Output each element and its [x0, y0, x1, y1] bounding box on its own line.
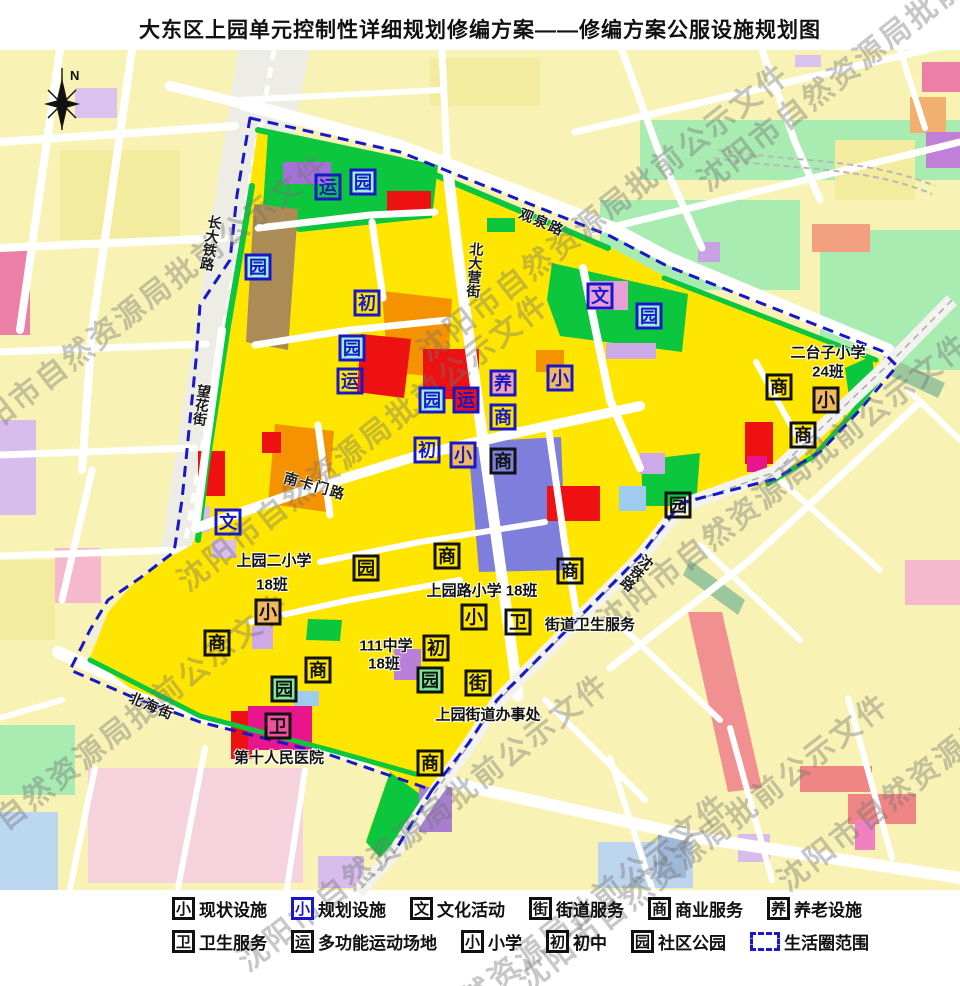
- facility-marker: 商: [204, 630, 231, 657]
- legend-item: 养养老设施: [767, 896, 862, 921]
- facility-marker: 小: [461, 604, 488, 631]
- legend-item: 商商业服务: [648, 896, 743, 921]
- facility-marker: 商: [490, 404, 517, 431]
- facility-marker: 初: [423, 635, 450, 662]
- legend-glyph-swatch: 文: [410, 897, 433, 920]
- legend-row: 小现状设施小规划设施文文化活动街街道服务商商业服务养养老设施: [0, 892, 960, 925]
- legend-glyph-swatch: 商: [648, 897, 671, 920]
- facility-marker: 运: [337, 368, 364, 395]
- legend-glyph-swatch: 初: [546, 930, 569, 953]
- legend-item: 小小学: [461, 929, 522, 954]
- legend-glyph-swatch: 运: [291, 930, 314, 953]
- facility-marker: 园: [353, 555, 380, 582]
- legend: 小现状设施小规划设施文文化活动街街道服务商商业服务养养老设施卫卫生服务运多功能运…: [0, 892, 960, 958]
- facility-marker: 园: [245, 254, 272, 281]
- facility-marker: 初: [354, 290, 381, 317]
- facility-marker: 园: [339, 335, 366, 362]
- legend-glyph-swatch: 养: [767, 897, 790, 920]
- facility-marker: 卫: [505, 609, 532, 636]
- legend-boundary-swatch: [750, 932, 780, 951]
- legend-item: 小现状设施: [172, 896, 267, 921]
- legend-glyph-swatch: 小: [172, 897, 195, 920]
- legend-item: 园社区公园: [631, 929, 726, 954]
- facility-marker: 商: [490, 448, 517, 475]
- legend-label: 规划设施: [318, 896, 386, 921]
- legend-glyph-swatch: 卫: [172, 930, 195, 953]
- facility-marker: 园: [665, 492, 692, 519]
- legend-item: 运多功能运动场地: [291, 929, 437, 954]
- facility-marker: 商: [790, 422, 817, 449]
- legend-label: 生活圈范围: [784, 929, 869, 954]
- legend-glyph-swatch: 街: [529, 897, 552, 920]
- legend-label: 多功能运动场地: [318, 929, 437, 954]
- facility-marker: 园: [636, 303, 663, 330]
- facility-marker: 卫: [265, 713, 292, 740]
- facility-marker: 初: [414, 437, 441, 464]
- facility-marker: 小: [255, 599, 282, 626]
- facility-marker: 商: [766, 374, 793, 401]
- facility-marker: 商: [417, 750, 444, 777]
- facility-marker: 养: [490, 370, 517, 397]
- facility-marker: 小: [450, 442, 477, 469]
- legend-label: 文化活动: [437, 896, 505, 921]
- legend-label: 养老设施: [794, 896, 862, 921]
- facility-marker: 小: [547, 365, 574, 392]
- facility-marker: 文: [587, 283, 614, 310]
- facility-marker-layer: 运园园初园运文园养商小园运初小商文商商园小小卫商初商园街园卫商园商小商: [0, 0, 960, 986]
- legend-item: 卫卫生服务: [172, 929, 267, 954]
- legend-item: 街街道服务: [529, 896, 624, 921]
- legend-item: 小规划设施: [291, 896, 386, 921]
- facility-marker: 文: [215, 509, 242, 536]
- facility-marker: 园: [350, 169, 377, 196]
- legend-label: 商业服务: [675, 896, 743, 921]
- legend-label: 街道服务: [556, 896, 624, 921]
- facility-marker: 园: [419, 387, 446, 414]
- legend-glyph-swatch: 小: [291, 897, 314, 920]
- legend-item: 文文化活动: [410, 896, 505, 921]
- legend-item: 生活圈范围: [750, 929, 869, 954]
- facility-marker: 街: [465, 670, 492, 697]
- facility-marker: 运: [453, 387, 480, 414]
- facility-marker: 商: [305, 657, 332, 684]
- facility-marker: 运: [315, 174, 342, 201]
- page-title: 大东区上园单元控制性详细规划修编方案——修编方案公服设施规划图: [0, 14, 960, 44]
- legend-label: 现状设施: [199, 896, 267, 921]
- legend-label: 小学: [488, 929, 522, 954]
- legend-glyph-swatch: 小: [461, 930, 484, 953]
- legend-row: 卫卫生服务运多功能运动场地小小学初初中园社区公园生活圈范围: [0, 925, 960, 958]
- facility-marker: 园: [417, 667, 444, 694]
- legend-item: 初初中: [546, 929, 607, 954]
- legend-label: 卫生服务: [199, 929, 267, 954]
- legend-glyph-swatch: 园: [631, 930, 654, 953]
- facility-marker: 小: [813, 387, 840, 414]
- legend-label: 社区公园: [658, 929, 726, 954]
- legend-label: 初中: [573, 929, 607, 954]
- planning-map-page: 大东区上园单元控制性详细规划修编方案——修编方案公服设施规划图: [0, 0, 960, 986]
- facility-marker: 商: [434, 543, 461, 570]
- facility-marker: 商: [557, 558, 584, 585]
- facility-marker: 园: [271, 676, 298, 703]
- map-area: N 沈阳市自然资源局批前公示文件沈阳市自然资源局批前公示文件沈阳市自然资源局批前…: [0, 0, 960, 986]
